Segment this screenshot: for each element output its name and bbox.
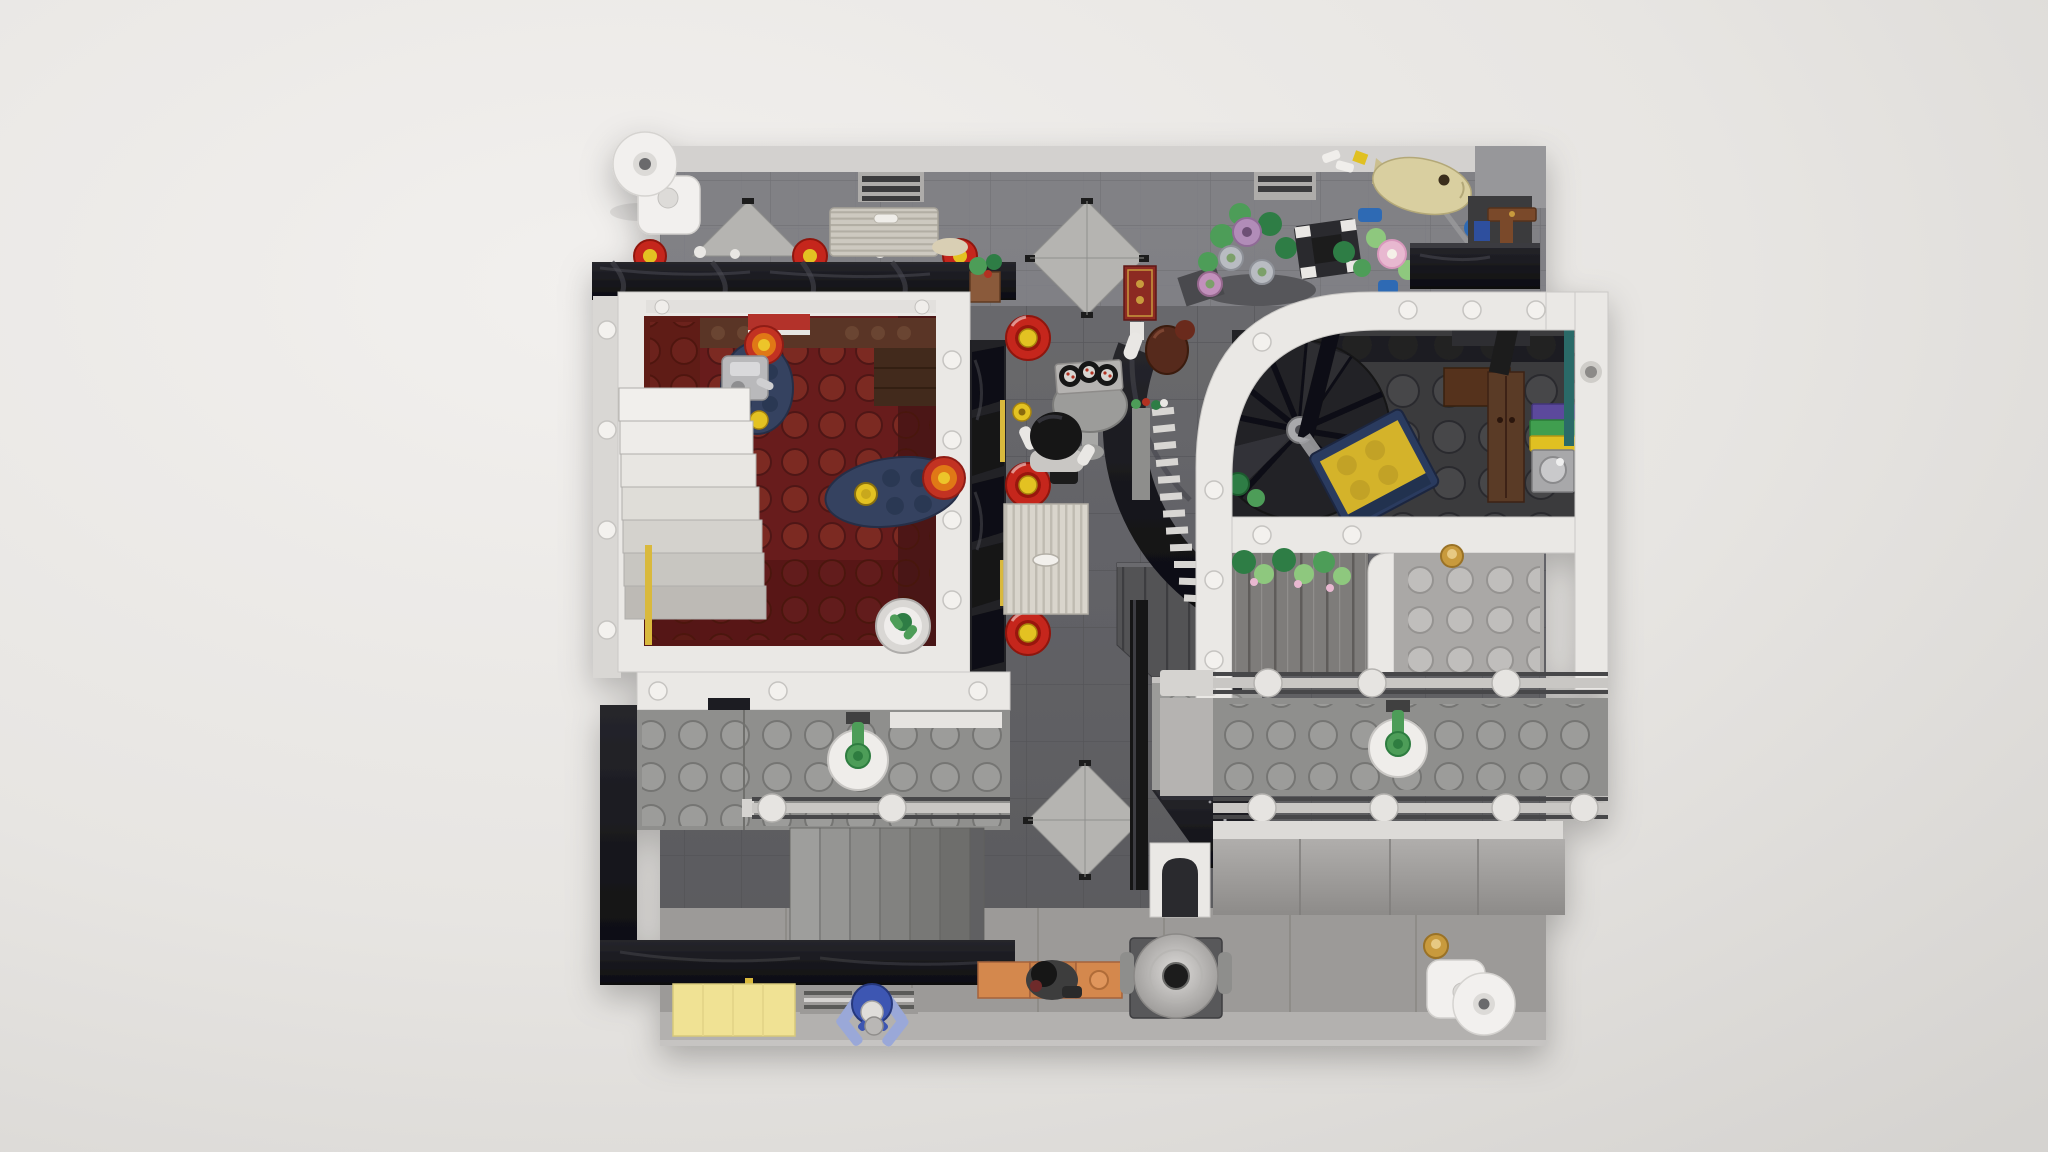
white-staircase xyxy=(619,388,766,619)
cactus-pot xyxy=(876,599,930,653)
corner-plant xyxy=(969,254,1002,302)
wall-stud xyxy=(1205,571,1223,589)
wall-stud xyxy=(1463,301,1481,319)
wall-stud xyxy=(1343,526,1361,544)
railing-post xyxy=(878,794,906,822)
fish-eye xyxy=(1439,175,1450,186)
wall-stud xyxy=(1253,333,1271,351)
red-stool xyxy=(1006,611,1050,655)
yellow-awning xyxy=(673,978,795,1036)
vent-grille-right xyxy=(1254,172,1316,200)
vent-block xyxy=(708,698,750,711)
black-bench-strip xyxy=(970,340,1006,672)
railing-post xyxy=(1248,794,1276,822)
leaf xyxy=(1210,224,1234,248)
fountain-hole xyxy=(1163,963,1189,989)
wardrobe-handle xyxy=(1509,417,1515,423)
railing-post xyxy=(1370,794,1398,822)
wall-stud xyxy=(598,321,616,339)
left-room-interior xyxy=(619,300,965,653)
target-plate-center xyxy=(938,472,950,484)
wall-stud xyxy=(943,511,961,529)
shrine-gold-dot xyxy=(1509,211,1515,217)
railing-post xyxy=(1492,794,1520,822)
wall-stud xyxy=(598,521,616,539)
purple-flower-center xyxy=(1206,280,1215,289)
shutter-handle xyxy=(874,214,898,223)
wall-stud xyxy=(1253,526,1271,544)
railing-post xyxy=(1570,794,1598,822)
lamp-bulb xyxy=(1479,999,1490,1010)
right-terrace xyxy=(1160,698,1608,796)
door-hinge xyxy=(655,300,669,314)
glass-door-line xyxy=(646,300,936,313)
wall-stud-hole-inner xyxy=(1585,366,1597,378)
stone-fountain xyxy=(1120,934,1232,1018)
sushi-roll xyxy=(1096,364,1118,386)
wall-stud xyxy=(598,621,616,639)
black-glossy-slab xyxy=(1410,243,1540,289)
wall-stud xyxy=(1527,301,1545,319)
thin-black-wall-highlight xyxy=(1133,600,1136,890)
left-building xyxy=(592,208,1016,678)
machine-knob xyxy=(1556,458,1564,466)
gold-stud-top xyxy=(1447,549,1457,559)
thin-black-wall xyxy=(1130,600,1148,890)
bench-stud xyxy=(1090,971,1108,989)
yellow-counter-edge xyxy=(1000,400,1005,462)
wall-stud xyxy=(649,682,667,700)
minifig-detail xyxy=(1030,980,1042,992)
wall-stud xyxy=(943,351,961,369)
gold-stud-top xyxy=(1431,939,1441,949)
fountain-handle xyxy=(1120,952,1134,994)
lower-white-band xyxy=(1232,517,1575,553)
light-plate-studs xyxy=(1408,560,1540,672)
ribbed-counter xyxy=(1004,504,1088,614)
green-bottle xyxy=(1247,489,1265,507)
leaf xyxy=(1275,237,1297,259)
minifig-legs xyxy=(1062,986,1082,998)
wall-stud xyxy=(1205,481,1223,499)
right-terrace-railing-bottom xyxy=(1213,794,1608,822)
scene-canvas xyxy=(0,0,2048,1152)
shrine-blue-part xyxy=(1474,221,1490,241)
yellow-mug-hole xyxy=(1019,409,1026,416)
black-roof-west xyxy=(600,705,637,980)
terrace-white-band xyxy=(637,672,1010,710)
wardrobe-handle xyxy=(1497,417,1503,423)
wall-stud xyxy=(769,682,787,700)
white-tile xyxy=(890,712,1002,728)
door-hinge xyxy=(915,300,929,314)
right-lower-section xyxy=(1232,517,1575,675)
east-wall xyxy=(1575,292,1608,690)
lamp-bulb xyxy=(639,158,651,170)
right-roof-slope xyxy=(1213,839,1565,915)
wall-stud xyxy=(598,421,616,439)
lavender-flower-center xyxy=(1242,227,1252,237)
railing-post xyxy=(1358,669,1386,697)
minifig-hair xyxy=(1030,412,1082,460)
pink-flower xyxy=(1378,240,1406,268)
railing-post xyxy=(758,794,786,822)
fountain-handle xyxy=(1218,952,1232,994)
left-stairs-down xyxy=(790,828,984,945)
wall-stud xyxy=(1399,301,1417,319)
counter-handle xyxy=(1033,554,1059,566)
leaf xyxy=(1198,252,1218,272)
silver-flower-center xyxy=(1258,268,1267,277)
lego-top-down-render xyxy=(0,0,2048,1152)
brown-shelf-bricks xyxy=(874,348,936,406)
railing-post xyxy=(1254,669,1282,697)
black-roof-south xyxy=(600,940,1015,985)
sushi-roll xyxy=(1059,365,1081,387)
silver-flower-center xyxy=(1227,254,1236,263)
red-stool xyxy=(1006,316,1050,360)
roof-eave-band xyxy=(1213,821,1563,839)
leaf xyxy=(1353,259,1371,277)
cream-roll xyxy=(932,238,968,256)
railing-post xyxy=(1492,669,1520,697)
right-terrace-railing-top xyxy=(1160,669,1608,697)
lego-model xyxy=(592,132,1608,1048)
gray-side-panel xyxy=(1132,408,1150,500)
wall-stud xyxy=(943,431,961,449)
wall-stud xyxy=(969,682,987,700)
white-arched-doorway xyxy=(1150,843,1210,917)
white-divider xyxy=(1368,553,1394,675)
yellow-wall-strip xyxy=(645,545,652,645)
yellow-round-center xyxy=(861,489,871,499)
blue-part xyxy=(1358,208,1382,222)
wall-stud xyxy=(943,591,961,609)
leaf xyxy=(1333,241,1355,263)
left-terrace-railing xyxy=(742,794,1010,822)
right-building xyxy=(1160,292,1608,958)
wall-stud xyxy=(1205,651,1223,669)
vent-grille-left xyxy=(858,172,924,202)
